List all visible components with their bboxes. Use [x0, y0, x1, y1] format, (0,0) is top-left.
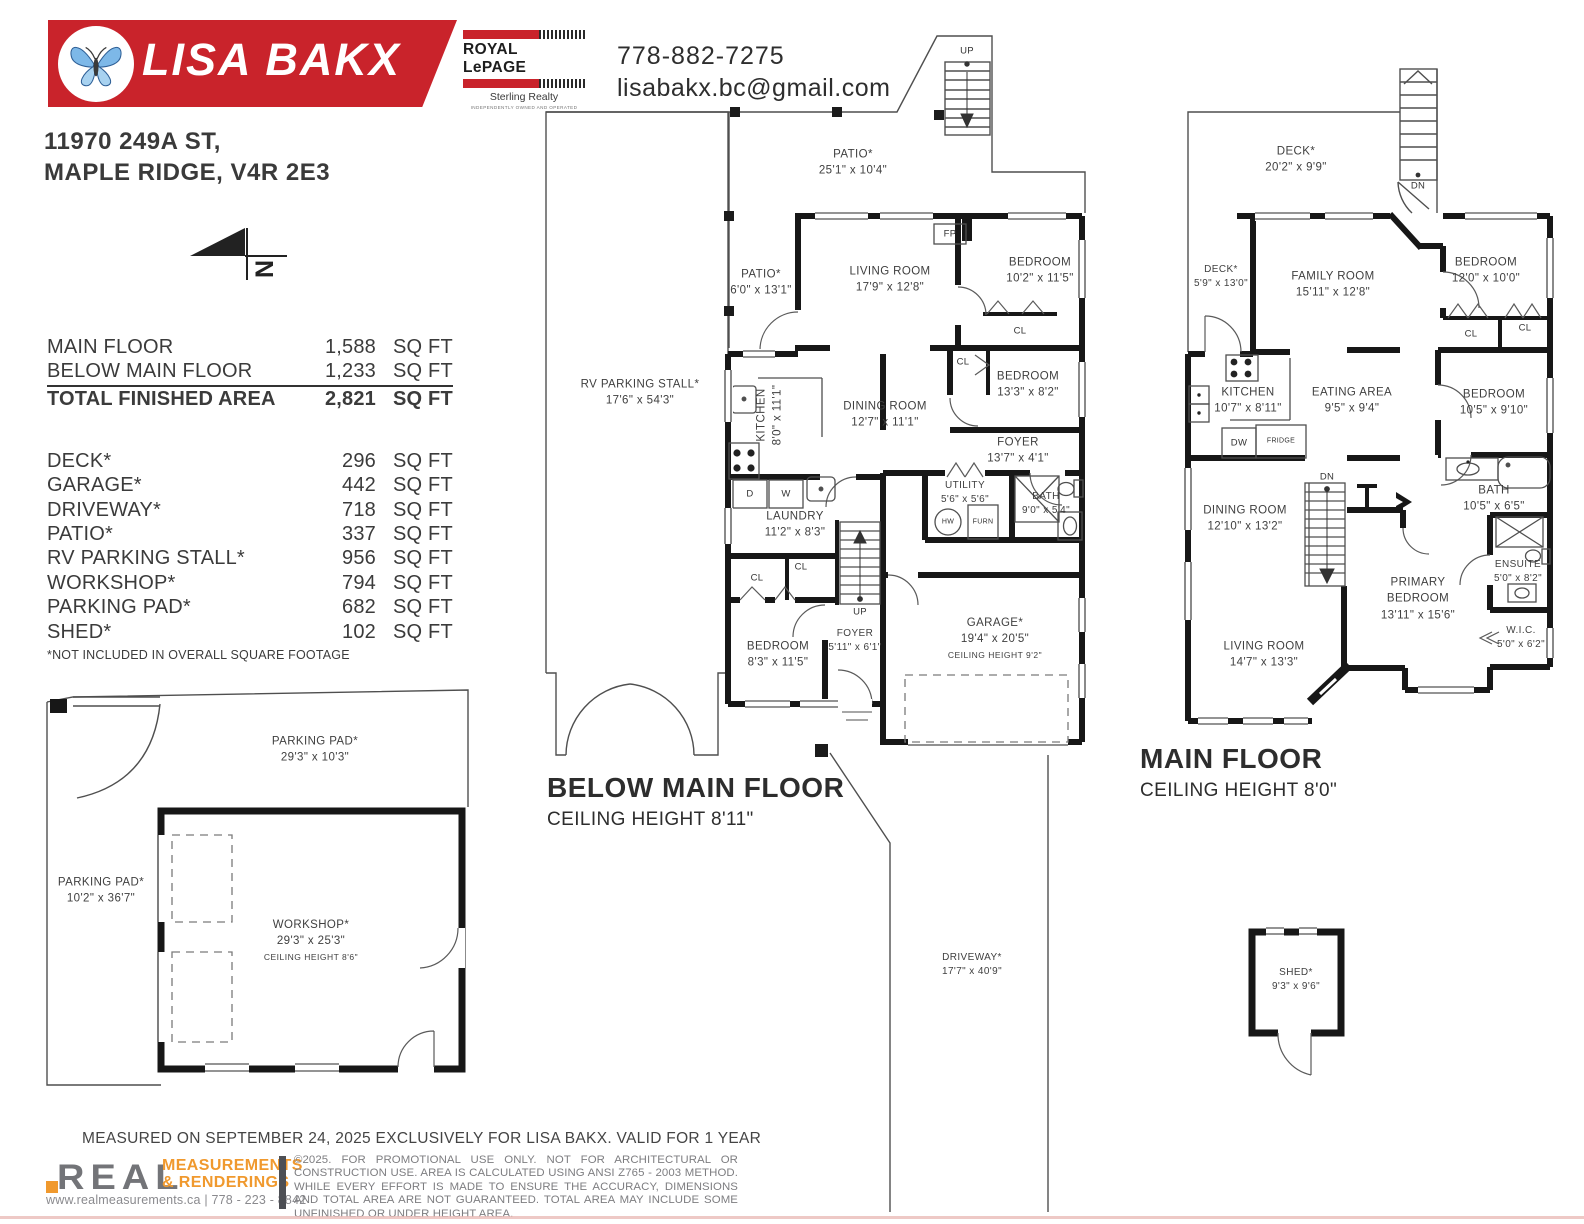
brokerage-name: ROYAL LePAGE — [463, 41, 585, 77]
table-row: PARKING PAD*682SQ FT — [47, 596, 453, 620]
north-arrow-label: N — [249, 260, 278, 278]
room-label-bath-below: BATH9'0" x 5'4" — [1022, 490, 1070, 518]
table-row: MAIN FLOOR1,588SQ FT — [47, 336, 453, 360]
room-label-garage: GARAGE*19'4" x 20'5"CEILING HEIGHT 9'2" — [948, 615, 1042, 661]
room-label-dining-main: DINING ROOM12'10" x 13'2" — [1203, 503, 1287, 536]
floorplan-flyer: LISA BAKX ROYAL LePAGE Sterling Realty I… — [0, 0, 1584, 1224]
measured-statement: MEASURED ON SEPTEMBER 24, 2025 EXCLUSIVE… — [82, 1130, 761, 1148]
room-label-dining: DINING ROOM12'7" x 11'1" — [843, 399, 927, 432]
room-label-deck-left: DECK*5'9" x 13'0" — [1194, 263, 1248, 291]
real-logo-line2: & RENDERINGS — [162, 1174, 289, 1192]
table-total-row: TOTAL FINISHED AREA2,821SQ FT — [47, 385, 453, 415]
table-footnote: *NOT INCLUDED IN OVERALL SQUARE FOOTAGE — [47, 648, 453, 662]
closet-label: CL — [1014, 326, 1027, 337]
property-address: 11970 249A ST, MAPLE RIDGE, V4R 2E3 — [44, 126, 330, 188]
address-line2: MAPLE RIDGE, V4R 2E3 — [44, 157, 330, 188]
closet-label: CL — [795, 562, 808, 573]
room-label-living-main: LIVING ROOM14'7" x 13'3" — [1223, 639, 1304, 672]
table-row: BELOW MAIN FLOOR1,233SQ FT — [47, 360, 453, 384]
fireplace-label: FP — [944, 229, 957, 240]
table-row: DRIVEWAY*718SQ FT — [47, 499, 453, 523]
table-row: WORKSHOP*794SQ FT — [47, 572, 453, 596]
table-row: GARAGE*442SQ FT — [47, 474, 453, 498]
main-floor-title: MAIN FLOOR CEILING HEIGHT 8'0" — [1140, 743, 1337, 802]
bottom-rule — [0, 1216, 1584, 1219]
room-label-utility: UTILITY5'6" x 5'6" — [941, 479, 989, 507]
stairs-up-label: UP — [853, 607, 867, 618]
agent-email: lisabakx.bc@gmail.com — [617, 74, 890, 103]
room-label-foyer-upper: FOYER13'7" x 4'1" — [987, 435, 1048, 468]
room-label-patio-top: PATIO*25'1" x 10'4" — [819, 147, 887, 180]
room-label-bedroom2: BEDROOM13'3" x 8'2" — [997, 369, 1059, 402]
room-label-workshop: WORKSHOP*29'3" x 25'3"CEILING HEIGHT 8'6… — [264, 917, 358, 963]
butterfly-icon — [65, 33, 127, 95]
butterfly-logo — [58, 26, 134, 102]
real-contact-line: www.realmeasurements.ca | 778 - 223 - 88… — [46, 1193, 306, 1207]
dishwasher-label: DW — [1231, 438, 1247, 449]
table-row: SHED*102SQ FT — [47, 621, 453, 645]
stairs-down-label: DN — [1320, 472, 1334, 483]
below-main-title: BELOW MAIN FLOOR CEILING HEIGHT 8'11" — [547, 772, 844, 831]
table-row: RV PARKING STALL*956SQ FT — [47, 547, 453, 571]
brokerage-tagline: INDEPENDENTLY OWNED AND OPERATED — [463, 105, 585, 110]
room-label-laundry: LAUNDRY11'2" x 8'3" — [765, 509, 826, 542]
address-line1: 11970 249A ST, — [44, 126, 330, 157]
room-label-family: FAMILY ROOM15'11" x 12'8" — [1291, 269, 1374, 302]
room-label-rv-stall: RV PARKING STALL*17'6" x 54'3" — [581, 377, 700, 410]
closet-label: CL — [1519, 323, 1532, 334]
room-label-bedroom-mid: BEDROOM10'5" x 9'10" — [1460, 387, 1528, 420]
room-label-bath-main: BATH10'5" x 6'5" — [1463, 483, 1524, 516]
area-table: MAIN FLOOR1,588SQ FT BELOW MAIN FLOOR1,2… — [47, 336, 453, 662]
dryer-label: D — [746, 489, 753, 500]
footer-disclaimer: ©2025. FOR PROMOTIONAL USE ONLY. NOT FOR… — [294, 1154, 738, 1221]
footer-divider — [279, 1156, 286, 1209]
hot-water-label: HW — [942, 519, 954, 526]
room-label-parking-pad-top: PARKING PAD*29'3" x 10'3" — [272, 734, 358, 767]
room-label-kitchen: KITCHEN8'0" x 11'1" — [754, 385, 787, 446]
brokerage-division: Sterling Realty — [463, 91, 585, 103]
agent-phone: 778-882-7275 — [617, 42, 785, 71]
stairs-down-label: DN — [1411, 181, 1425, 192]
table-row: DECK*296SQ FT — [47, 450, 453, 474]
room-label-bedroom1: BEDROOM10'2" x 11'5" — [1006, 255, 1073, 288]
washer-label: W — [781, 489, 790, 500]
room-label-shed: SHED*9'3" x 9'6" — [1272, 966, 1320, 994]
furnace-label: FURN — [973, 519, 994, 526]
room-label-ensuite: ENSUITE5'0" x 8'2" — [1494, 558, 1542, 586]
room-label-living: LIVING ROOM17'9" x 12'8" — [849, 264, 930, 297]
room-label-driveway: DRIVEWAY*17'7" x 40'9" — [942, 951, 1002, 979]
brokerage-bar-top — [463, 30, 585, 39]
room-label-primary: PRIMARY BEDROOM13'11" x 15'6" — [1376, 575, 1460, 624]
table-row: PATIO*337SQ FT — [47, 523, 453, 547]
closet-label: CL — [751, 573, 764, 584]
room-label-foyer-lower: FOYER5'11" x 6'1" — [828, 627, 881, 655]
room-label-kitchen-main: KITCHEN10'7" x 8'11" — [1214, 385, 1281, 418]
brokerage-bar-bottom — [463, 79, 585, 88]
closet-label: CL — [957, 357, 970, 368]
room-label-parking-pad-left: PARKING PAD*10'2" x 36'7" — [58, 875, 144, 908]
closet-label: CL — [1465, 329, 1478, 340]
room-label-bedroom-right: BEDROOM12'0" x 10'0" — [1452, 255, 1520, 288]
room-label-bedroom3: BEDROOM8'3" x 11'5" — [747, 639, 809, 672]
fridge-label: FRIDGE — [1267, 438, 1295, 445]
room-label-deck-top: DECK*20'2" x 9'9" — [1265, 144, 1326, 177]
room-label-eating: EATING AREA9'5" x 9'4" — [1312, 385, 1392, 418]
stairs-up-label: UP — [960, 46, 974, 57]
brokerage-logo: ROYAL LePAGE Sterling Realty INDEPENDENT… — [463, 30, 585, 110]
room-label-wic: W.I.C.5'0" x 6'2" — [1497, 624, 1545, 652]
agent-name: LISA BAKX — [142, 34, 401, 86]
room-label-patio-left: PATIO*6'0" x 13'1" — [730, 267, 791, 300]
